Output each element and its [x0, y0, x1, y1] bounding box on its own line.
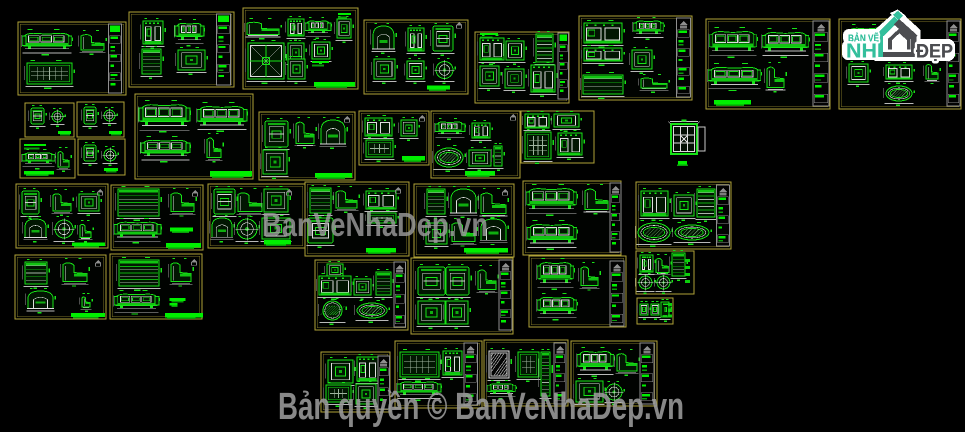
- svg-text:NH: NH: [846, 41, 877, 63]
- svg-text:Bản quyền © BanVeNhaDep.vn: Bản quyền © BanVeNhaDep.vn: [278, 386, 684, 427]
- svg-text:ĐẸP: ĐẸP: [916, 42, 953, 63]
- svg-text:BanVeNhaDep.vn: BanVeNhaDep.vn: [262, 206, 488, 243]
